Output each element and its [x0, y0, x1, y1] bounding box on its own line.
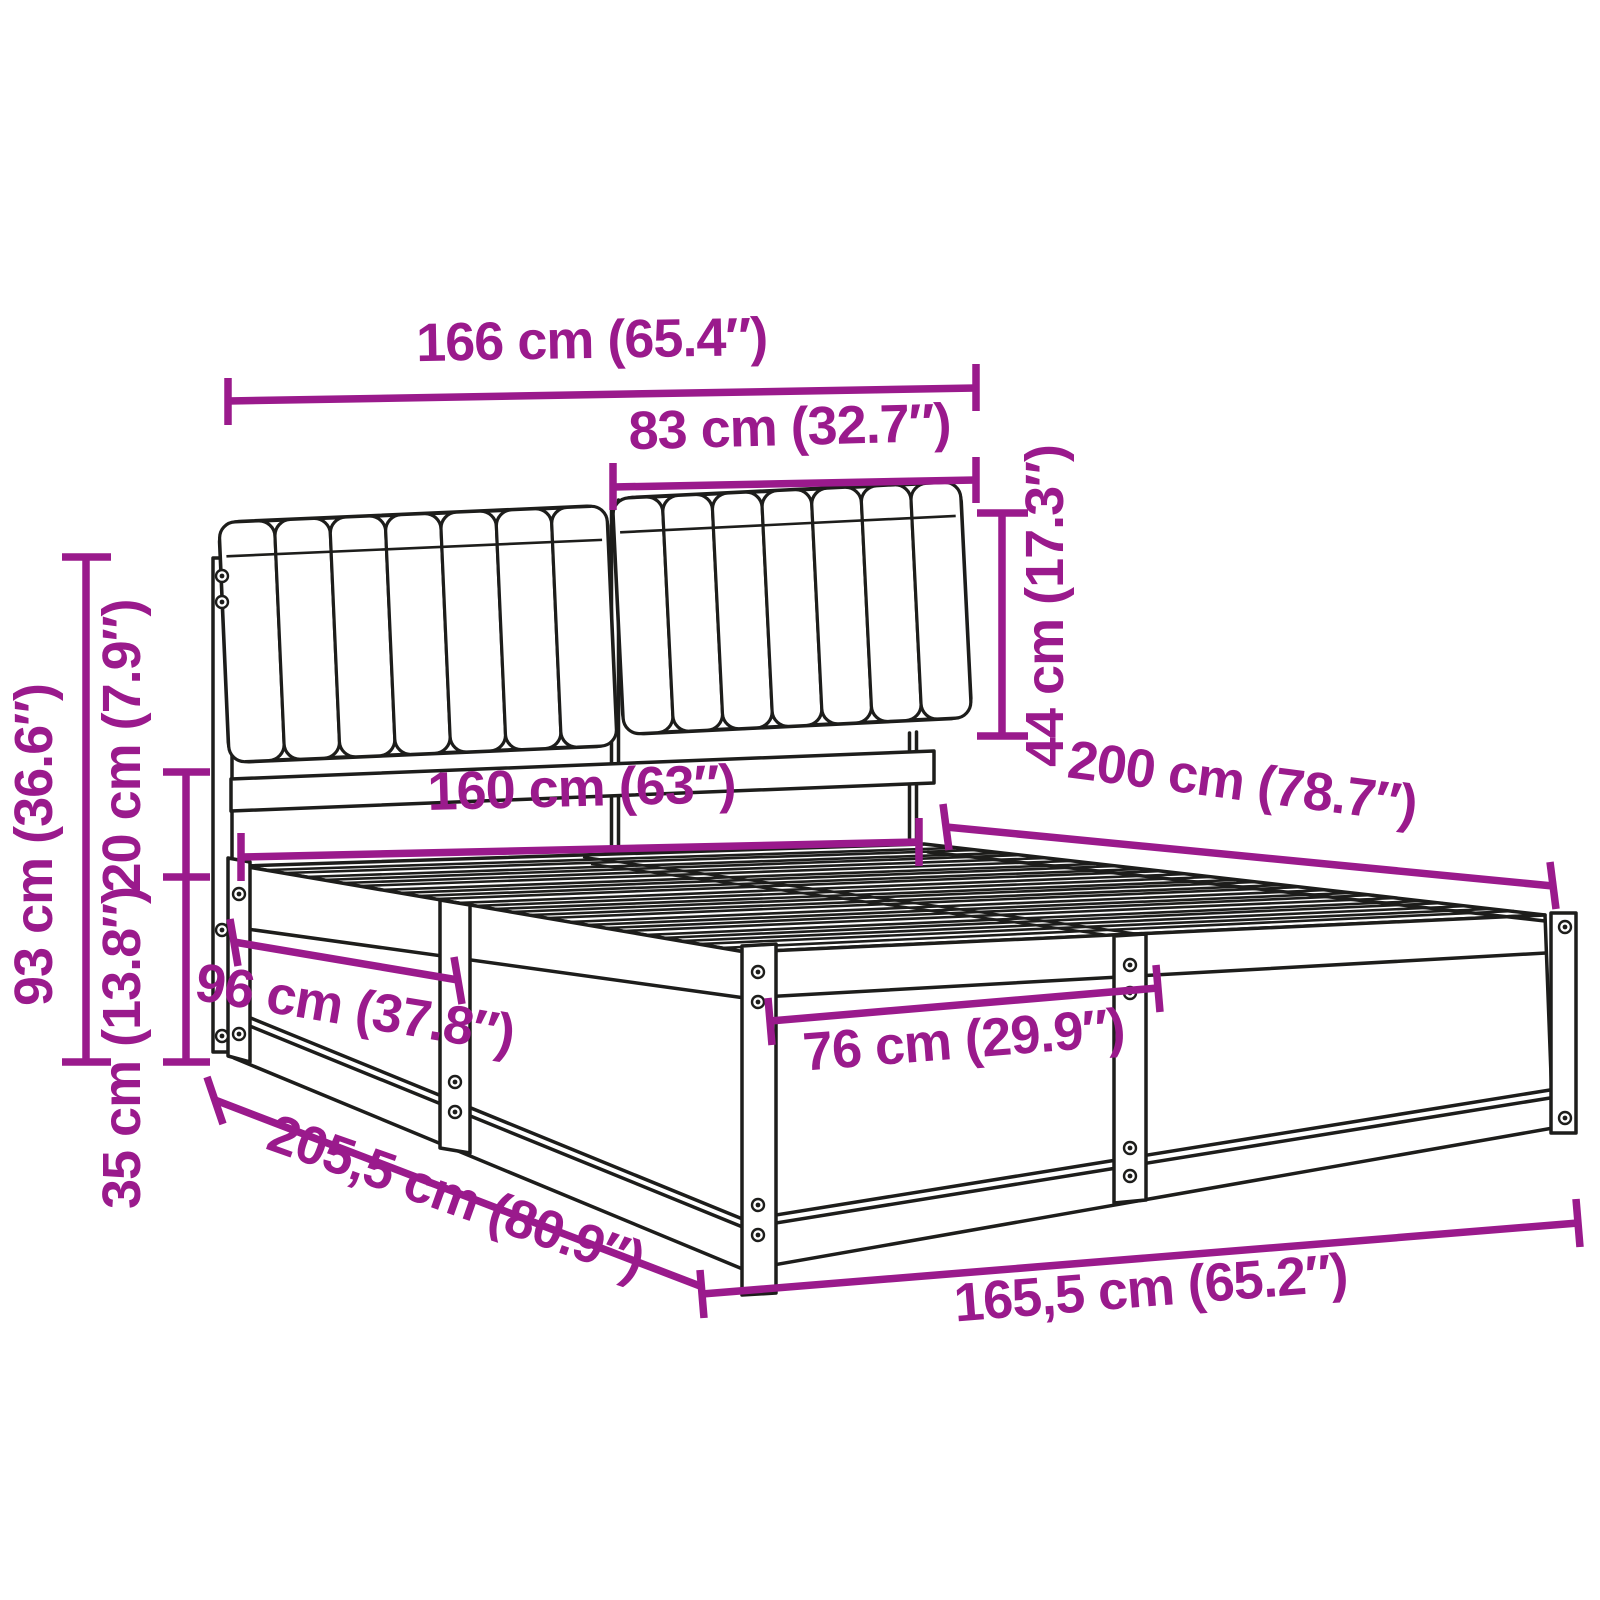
- headboard-cushion-right: [612, 482, 971, 735]
- dimension-cushion-height: 44 cm (17.3″): [977, 445, 1075, 767]
- dimension-cushion-gap: 20 cm (7.9″): [92, 599, 210, 892]
- bed-dimension-diagram: 166 cm (65.4″) 83 cm (32.7″) 44 cm (17.3…: [0, 0, 1600, 1600]
- dim-label-93: 93 cm (36.6″): [4, 684, 64, 1006]
- dim-label-20: 20 cm (7.9″): [92, 599, 152, 892]
- dim-label-35: 35 cm (13.8″): [92, 887, 152, 1209]
- dimension-diagram-page: 166 cm (65.4″) 83 cm (32.7″) 44 cm (17.3…: [0, 0, 1600, 1600]
- dim-label-44: 44 cm (17.3″): [1015, 445, 1075, 767]
- dim-label-83: 83 cm (32.7″): [628, 393, 952, 461]
- headboard-cushion-left: [219, 506, 617, 763]
- dim-label-166: 166 cm (65.4″): [416, 307, 768, 373]
- dim-label-160: 160 cm (63″): [427, 754, 737, 822]
- dimension-base-height: 35 cm (13.8″): [92, 877, 210, 1209]
- foot-panel: [745, 915, 1553, 1270]
- dim-label-200: 200 cm (78.7″): [1064, 729, 1420, 834]
